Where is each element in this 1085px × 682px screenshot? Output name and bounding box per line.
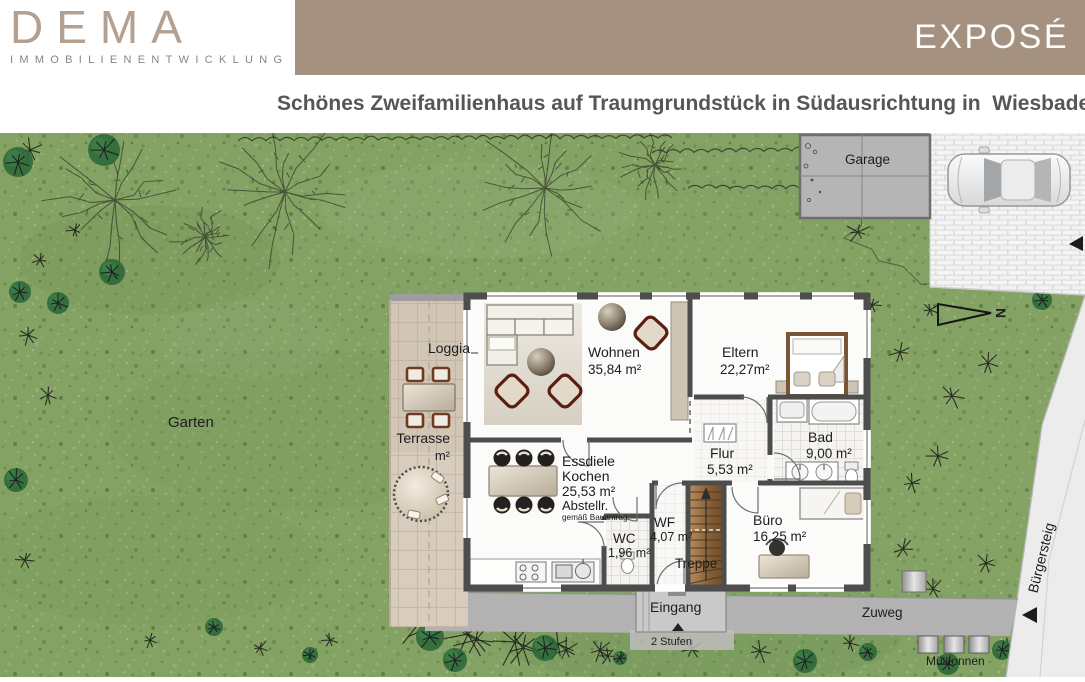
zuweg-label: Zuweg <box>862 605 903 620</box>
wohnen-area: 35,84 m² <box>588 362 642 377</box>
hall-closet <box>704 424 736 442</box>
kochen-label: Kochen <box>562 468 609 484</box>
flur-label: Flur <box>710 445 734 461</box>
wc-label: WC <box>613 531 636 546</box>
bed <box>776 334 858 396</box>
expose-banner: EXPOSÉ <box>295 0 1085 75</box>
parked-car <box>948 147 1070 213</box>
terrasse-area-label: m² <box>435 448 451 463</box>
wc-area: 1,96 m² <box>608 546 650 560</box>
loggia-label: Loggia <box>428 340 470 356</box>
staircase <box>688 483 724 588</box>
coffee-table <box>527 348 555 376</box>
garage: Garage <box>800 135 930 218</box>
abstellraum-label: Abstellr. <box>562 498 608 513</box>
kitchen-counter <box>470 559 600 585</box>
trash-bins: Mülltonnen <box>918 636 989 668</box>
utility-box <box>902 571 926 592</box>
side-table <box>598 303 626 331</box>
stufen-label: 2 Stufen <box>651 636 692 648</box>
eltern-label: Eltern <box>722 344 759 360</box>
dining-set <box>489 450 557 514</box>
essdiele-label: Essdiele <box>562 453 615 469</box>
eingang-label: Eingang <box>650 599 701 615</box>
title-bar: Schönes Zweifamilienhaus auf Traumgrunds… <box>295 75 1085 133</box>
wf-label: WF <box>654 515 675 530</box>
treppe-label: Treppe <box>675 556 717 571</box>
eltern-area: 22,27m² <box>720 362 770 377</box>
bad-label: Bad <box>808 429 833 445</box>
brand-logo-subtitle: IMMOBILIENENTWICKLUNG <box>10 54 290 66</box>
built-in-cabinet <box>671 302 688 420</box>
page-header: DEMA IMMOBILIENENTWICKLUNG EXPOSÉ Schöne… <box>0 0 1085 133</box>
garage-label: Garage <box>845 152 890 167</box>
page-title: Schönes Zweifamilienhaus auf Traumgrunds… <box>277 92 1085 116</box>
wohnen-label: Wohnen <box>588 344 640 360</box>
buero-area: 16,25 m² <box>753 529 807 544</box>
brand-logo: DEMA IMMOBILIENENTWICKLUNG <box>10 2 290 74</box>
abstellraum-note: gemäß Bauantrag <box>562 513 628 522</box>
bad-area: 9,00 m² <box>806 446 852 461</box>
buero-label: Büro <box>753 512 783 528</box>
wf-area: 4,07 m² <box>650 530 692 544</box>
house: Wohnen 35,84 m² Eltern 22,27m² Bad 9,00 … <box>428 292 871 592</box>
garten-label: Garten <box>168 414 214 431</box>
north-label: N <box>993 308 1009 318</box>
site-plan: Garage Bürgersteig Eingang 2 Stufen Zuwe… <box>0 133 1085 677</box>
flur-area: 5,53 m² <box>707 462 753 477</box>
essdiele-area: 25,53 m² <box>562 484 616 499</box>
muelltonnen-label: Mülltonnen <box>926 654 985 668</box>
brand-logo-word: DEMA <box>10 2 290 52</box>
terrasse-label: Terrasse <box>396 430 450 446</box>
expose-banner-label: EXPOSÉ <box>914 18 1085 57</box>
